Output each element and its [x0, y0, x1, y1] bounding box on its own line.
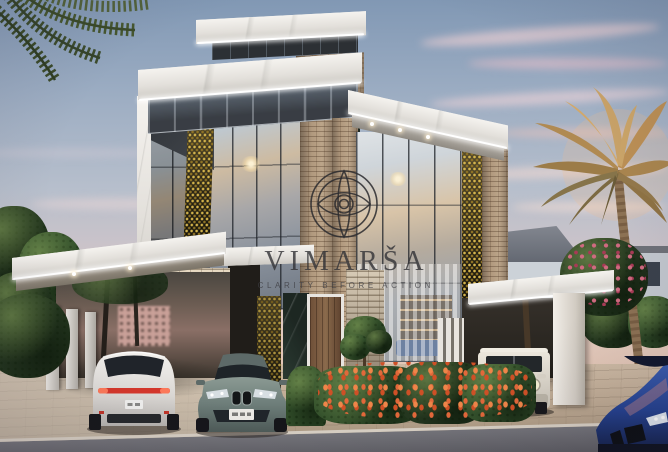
watermark: VIMARŠA CLARITY BEFORE ACTION [212, 168, 476, 290]
soffit-light [426, 135, 430, 139]
white-suv-rear [84, 332, 184, 436]
palm-fronds-overhang [0, 0, 160, 100]
soffit-light [370, 122, 374, 126]
marble-wall-right [553, 293, 585, 405]
watermark-logo-icon [308, 168, 380, 240]
soffit-light [72, 272, 76, 276]
watermark-brand: VIMARŠA [212, 246, 476, 278]
villa-rendering: VIMARŠA CLARITY BEFORE ACTION [0, 0, 668, 452]
watermark-tagline: CLARITY BEFORE ACTION [212, 281, 476, 290]
blue-coupe-front [594, 356, 668, 452]
soffit-light [398, 128, 402, 132]
corner-foliage [0, 294, 70, 378]
sunset-cloud [468, 58, 668, 69]
planter-tree-foliage [366, 330, 392, 354]
orange-flowers [318, 362, 532, 418]
soffit-light [128, 266, 132, 270]
grey-sedan-front [192, 352, 292, 438]
